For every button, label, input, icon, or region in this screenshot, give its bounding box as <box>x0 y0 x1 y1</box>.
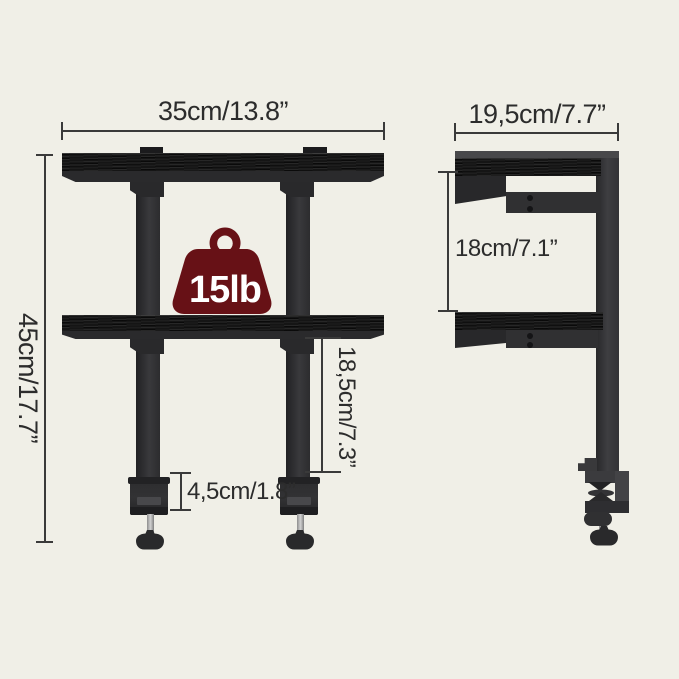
side-top-shelf-side-panel <box>455 176 506 204</box>
side-top-shelf-board <box>455 158 601 176</box>
side-clamp-foot-tab <box>578 458 597 471</box>
side-top-arm-bolt-lower <box>527 206 533 212</box>
side-depth-dimension-label: 19,5cm/7.7” <box>455 100 619 128</box>
product-dimension-diagram: 35cm/13.8” 45cm/17.7” 15lb <box>0 0 679 679</box>
side-lower-arm-bolt-upper <box>527 333 533 339</box>
side-depth-dimension-line <box>455 132 619 134</box>
side-top-shelf-top-face <box>455 151 619 158</box>
side-clamp-knob-icon <box>588 526 620 546</box>
side-tier-dimension-line <box>447 172 449 312</box>
side-tier-dimension-label: 18cm/7.1” <box>455 236 557 261</box>
side-clamp-handle <box>584 512 612 526</box>
side-lower-arm-bolt-lower <box>527 342 533 348</box>
side-lower-shelf-board <box>455 312 603 330</box>
side-clamp-jaw-pads-icon <box>586 482 616 502</box>
side-depth-tick-left <box>454 123 456 141</box>
side-depth-tick-right <box>617 123 619 141</box>
side-lower-support-arm <box>506 330 598 348</box>
side-top-support-arm <box>506 192 601 213</box>
side-lower-shelf-side-panel <box>455 330 506 348</box>
side-tier-tick-top <box>438 171 458 173</box>
side-view: 19,5cm/7.7” 18cm/7.1” <box>0 0 679 679</box>
side-top-arm-bolt-upper <box>527 195 533 201</box>
